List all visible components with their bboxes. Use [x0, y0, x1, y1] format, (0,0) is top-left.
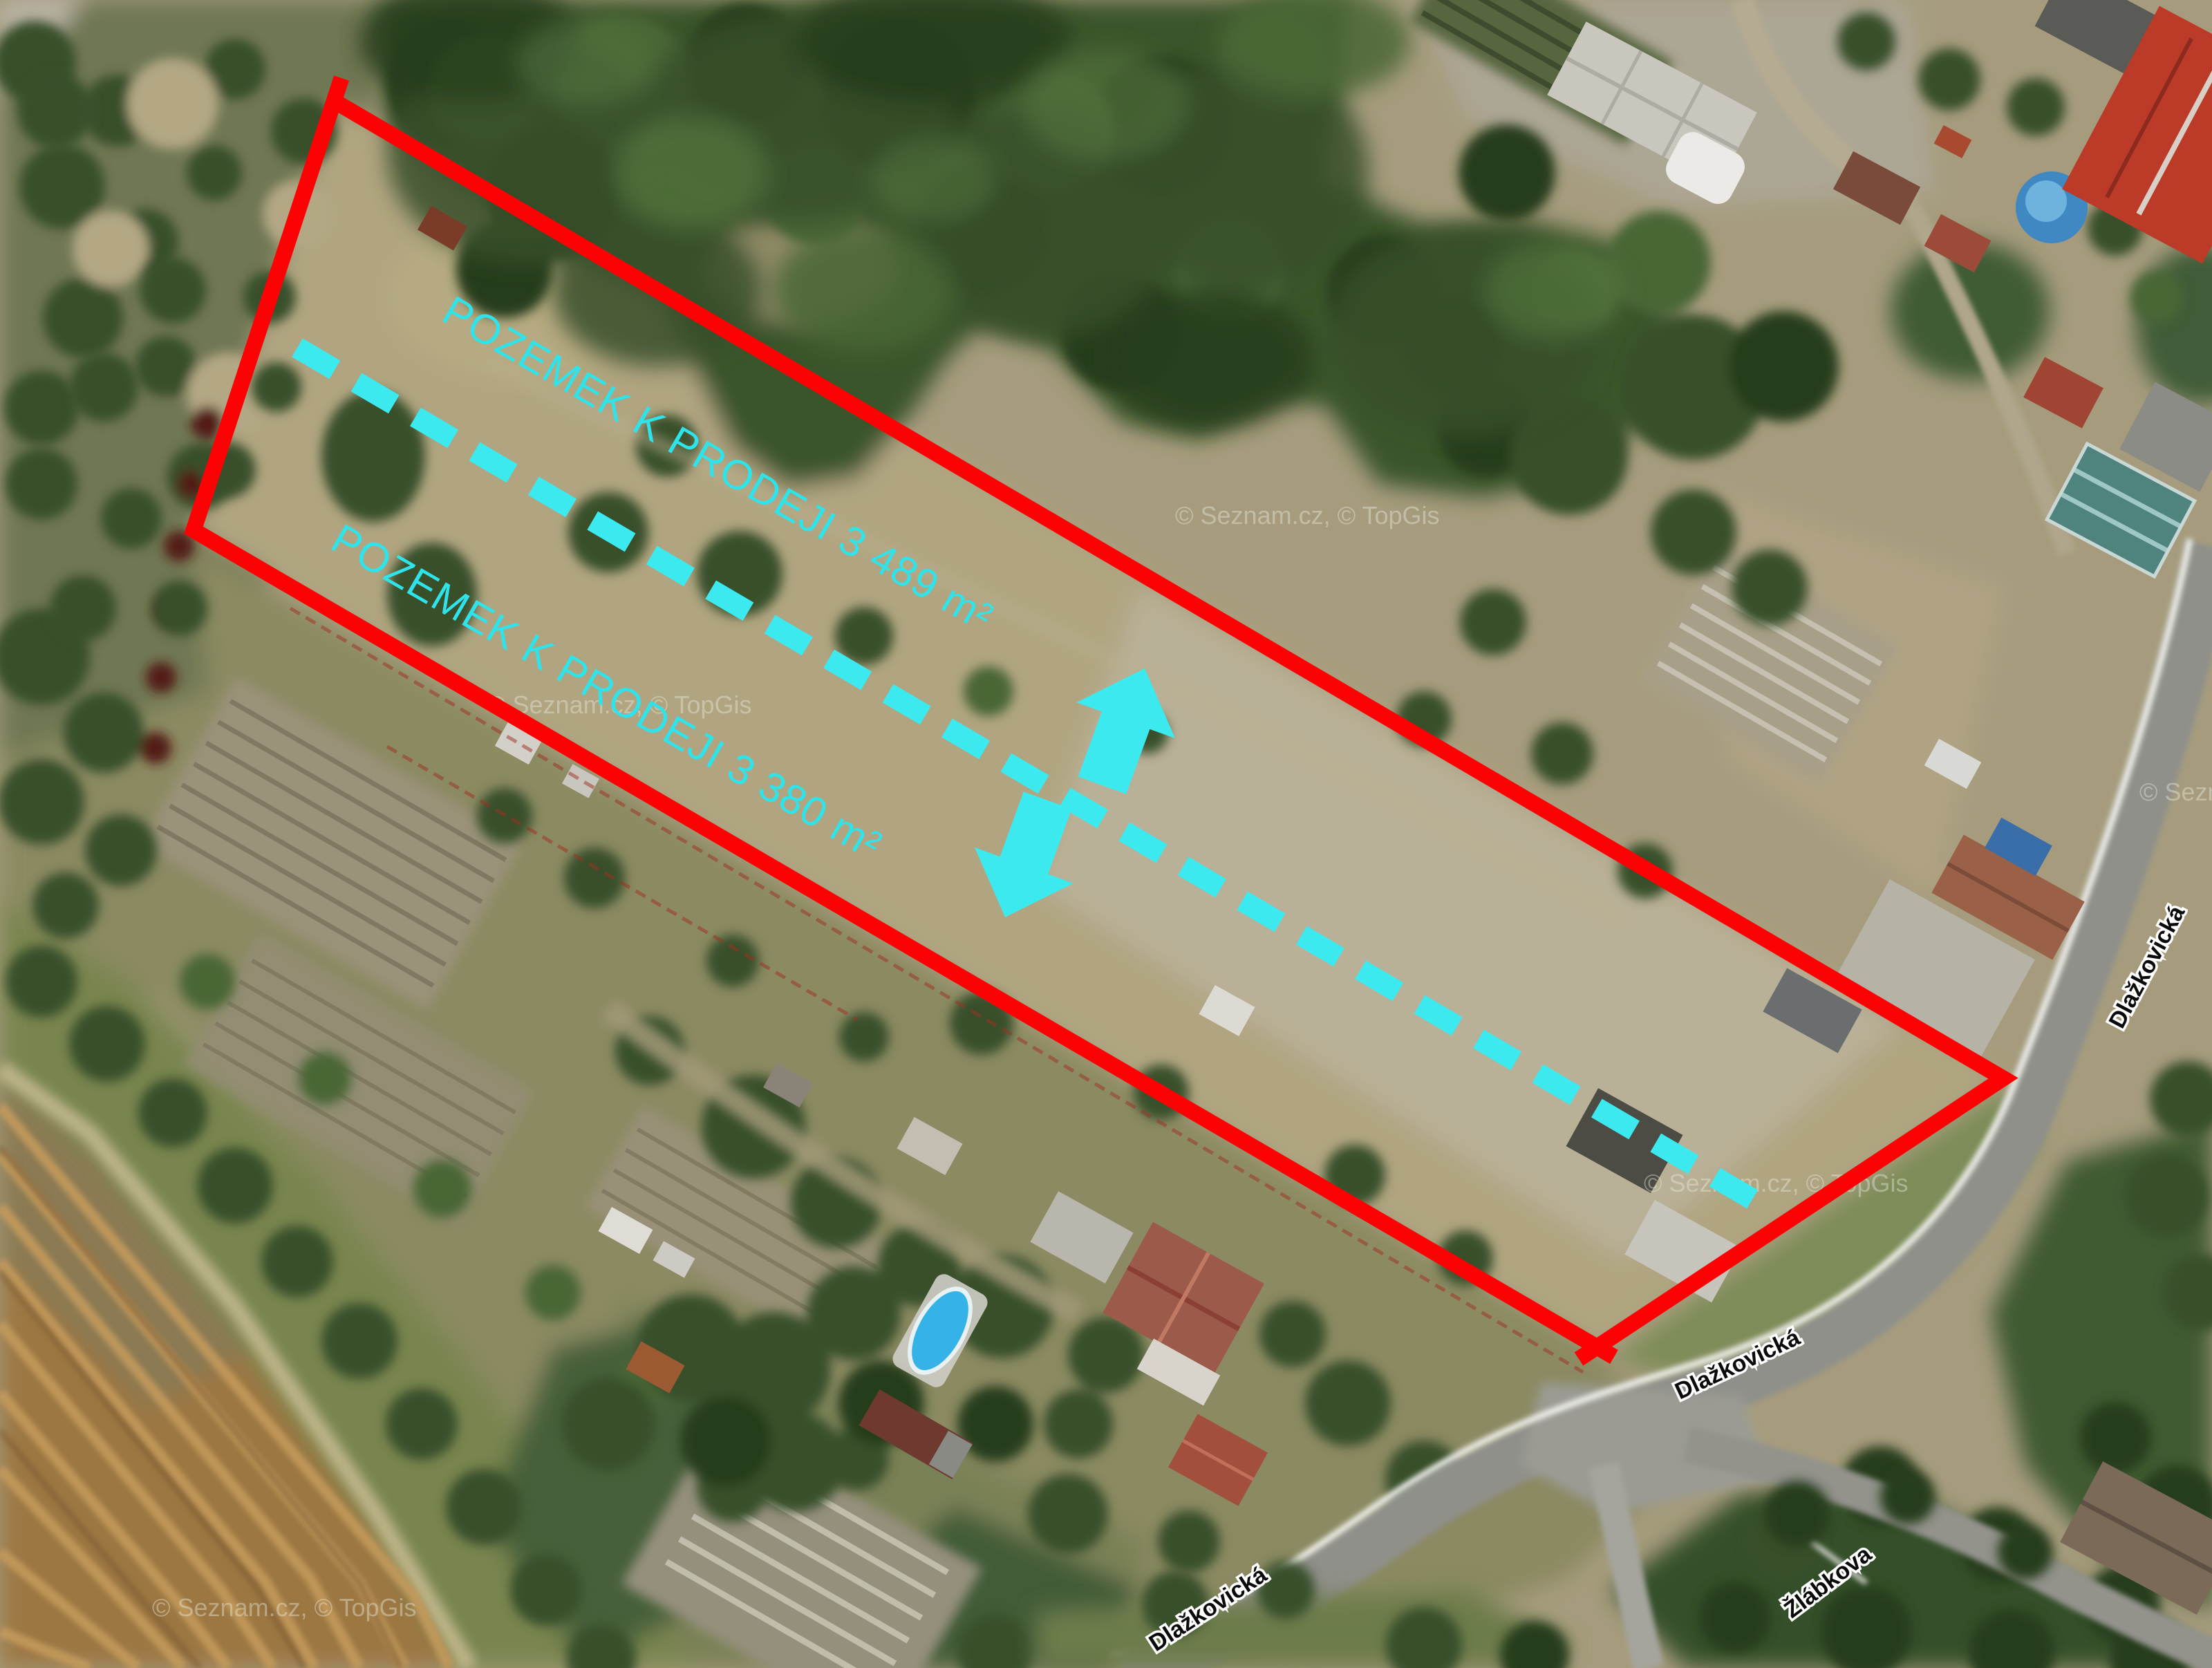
svg-text:© Seznam.cz, © TopGis: © Seznam.cz, © TopGis [1175, 501, 1440, 530]
svg-text:© Seznam.cz, © TopGis: © Seznam.cz, © TopGis [152, 1593, 417, 1622]
svg-text:© Sezn: © Sezn [2139, 778, 2212, 806]
